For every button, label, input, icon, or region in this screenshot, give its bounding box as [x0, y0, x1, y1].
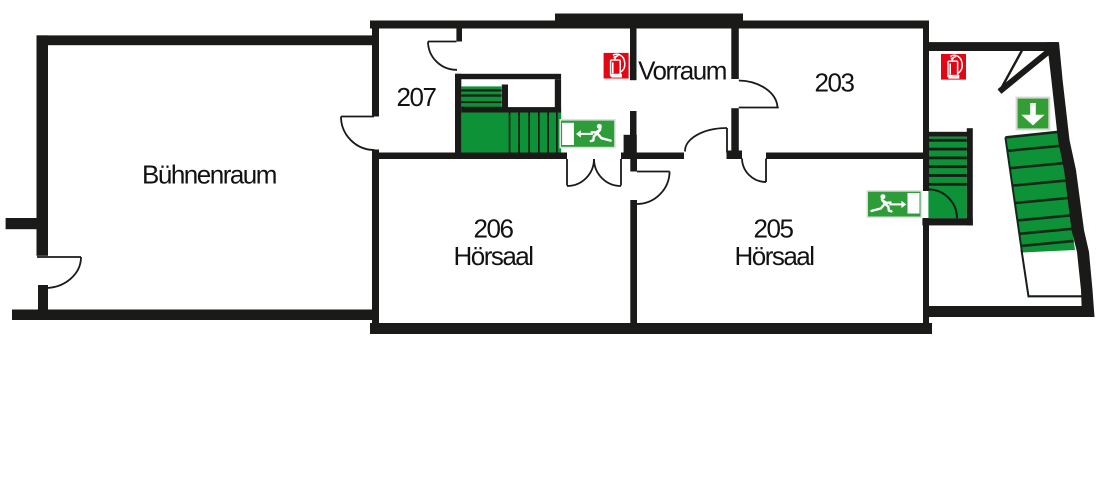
svg-text:203: 203	[815, 68, 855, 98]
svg-text:Bühnenraum: Bühnenraum	[142, 159, 276, 189]
svg-text:206: 206	[474, 214, 514, 244]
svg-text:205: 205	[754, 214, 794, 244]
svg-text:Vorraum: Vorraum	[638, 56, 726, 86]
svg-text:207: 207	[397, 82, 437, 112]
svg-text:Hörsaal: Hörsaal	[734, 241, 814, 271]
svg-text:Hörsaal: Hörsaal	[453, 241, 533, 271]
